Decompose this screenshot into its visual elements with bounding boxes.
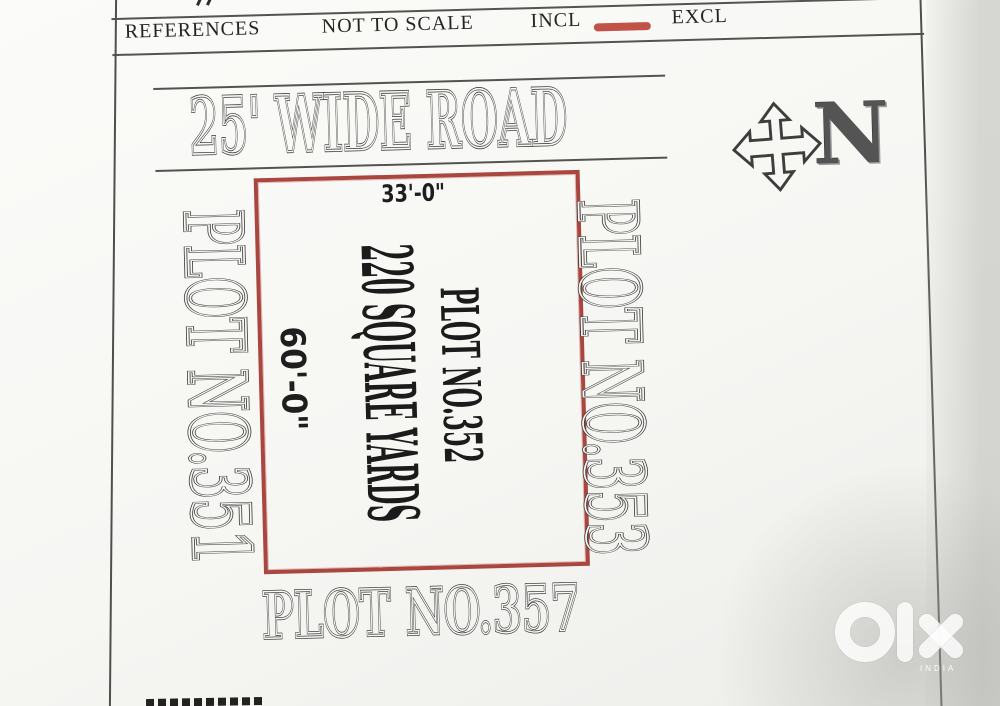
svg-text:25' WIDE ROAD: 25' WIDE ROAD [188, 72, 568, 173]
olx-watermark-logo: INDIA [830, 598, 1000, 690]
svg-text:PLOT NO.353: PLOT NO.353 [558, 198, 663, 556]
right-plot-label: PLOT NO.353 PLOT NO.353 [552, 176, 662, 578]
not-to-scale-label: NOT TO SCALE [321, 12, 474, 38]
plot-center-label: PLOT NO.352 220 SQUARE YARDS [335, 230, 513, 534]
plot-number-text: PLOT NO.352 [428, 286, 494, 464]
legend-row-top-line [111, 0, 923, 20]
scan-artifact-mark [196, 0, 202, 6]
cut-off-text-artifact [146, 697, 264, 706]
svg-text:PLOT NO.351: PLOT NO.351 [165, 208, 268, 564]
olx-l-icon [897, 602, 913, 662]
svg-text:PLOT NO.357: PLOT NO.357 [261, 571, 581, 654]
incl-label: INCL [530, 9, 581, 32]
left-plot-label: PLOT NO.351 PLOT NO.351 [156, 190, 266, 582]
scanned-plot-map-page: REFERENCES NOT TO SCALE INCL EXCL 25' WI… [0, 0, 1000, 706]
olx-o-icon [835, 602, 895, 662]
plot-height-dimension: 60'-0" [272, 326, 315, 431]
plot-width-dimension: 33'-0" [365, 178, 462, 209]
watermark-india-label: INDIA [920, 664, 956, 673]
bottom-plot-label: PLOT NO.357 PLOT NO.357 [240, 571, 602, 656]
north-label: N [812, 93, 891, 175]
plot-area-text: 220 SQUARE YARDS [344, 243, 434, 523]
incl-red-swatch [594, 22, 651, 31]
references-label: REFERENCES [124, 17, 260, 43]
compass-rose-icon [729, 98, 826, 195]
excl-label: EXCL [671, 5, 728, 28]
scan-artifact-mark [206, 0, 212, 6]
